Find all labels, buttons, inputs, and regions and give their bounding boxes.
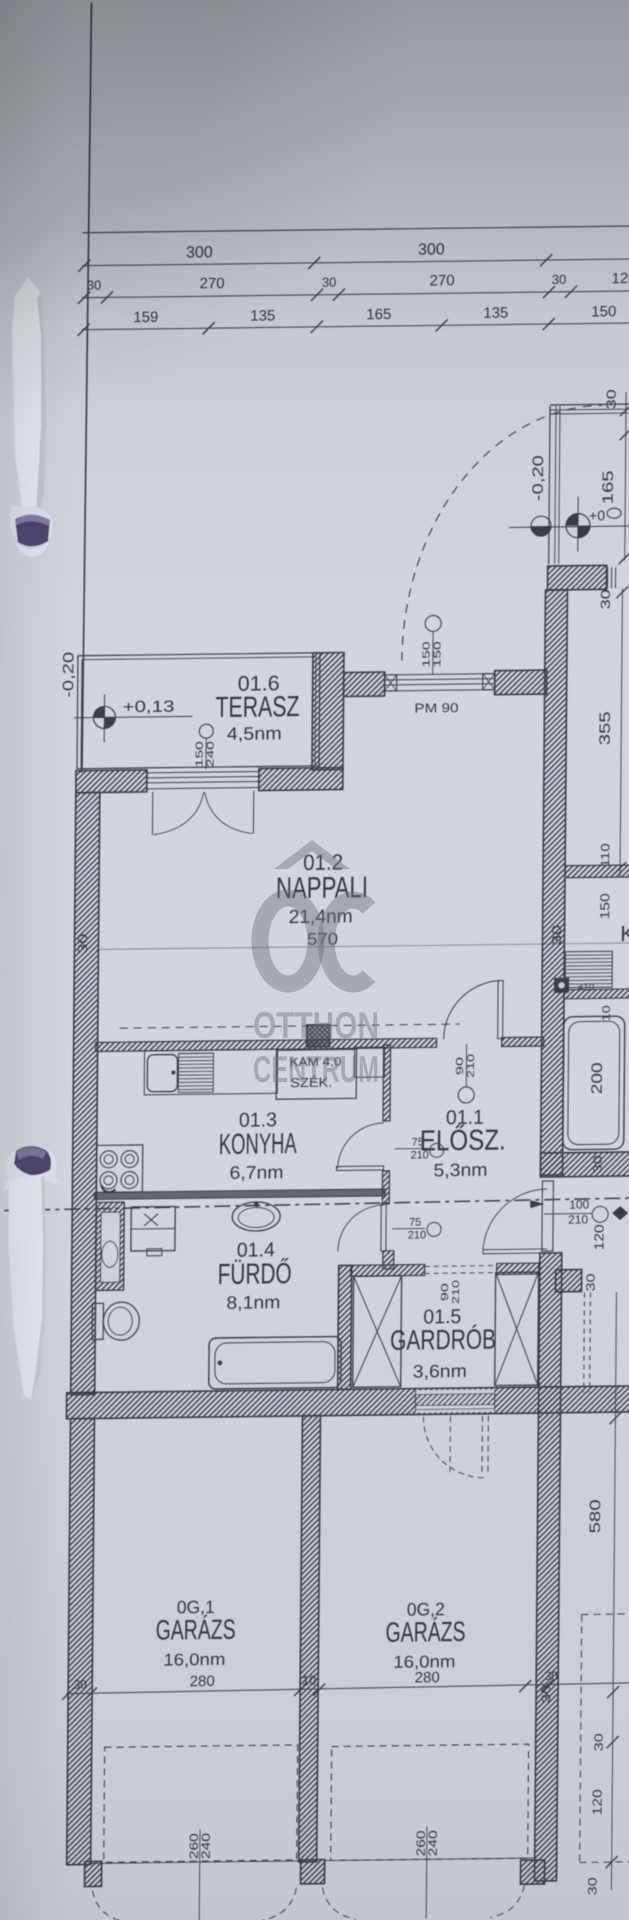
svg-text:CENTRUM: CENTRUM — [253, 1049, 379, 1090]
svg-text:OTTHON: OTTHON — [253, 1005, 379, 1046]
